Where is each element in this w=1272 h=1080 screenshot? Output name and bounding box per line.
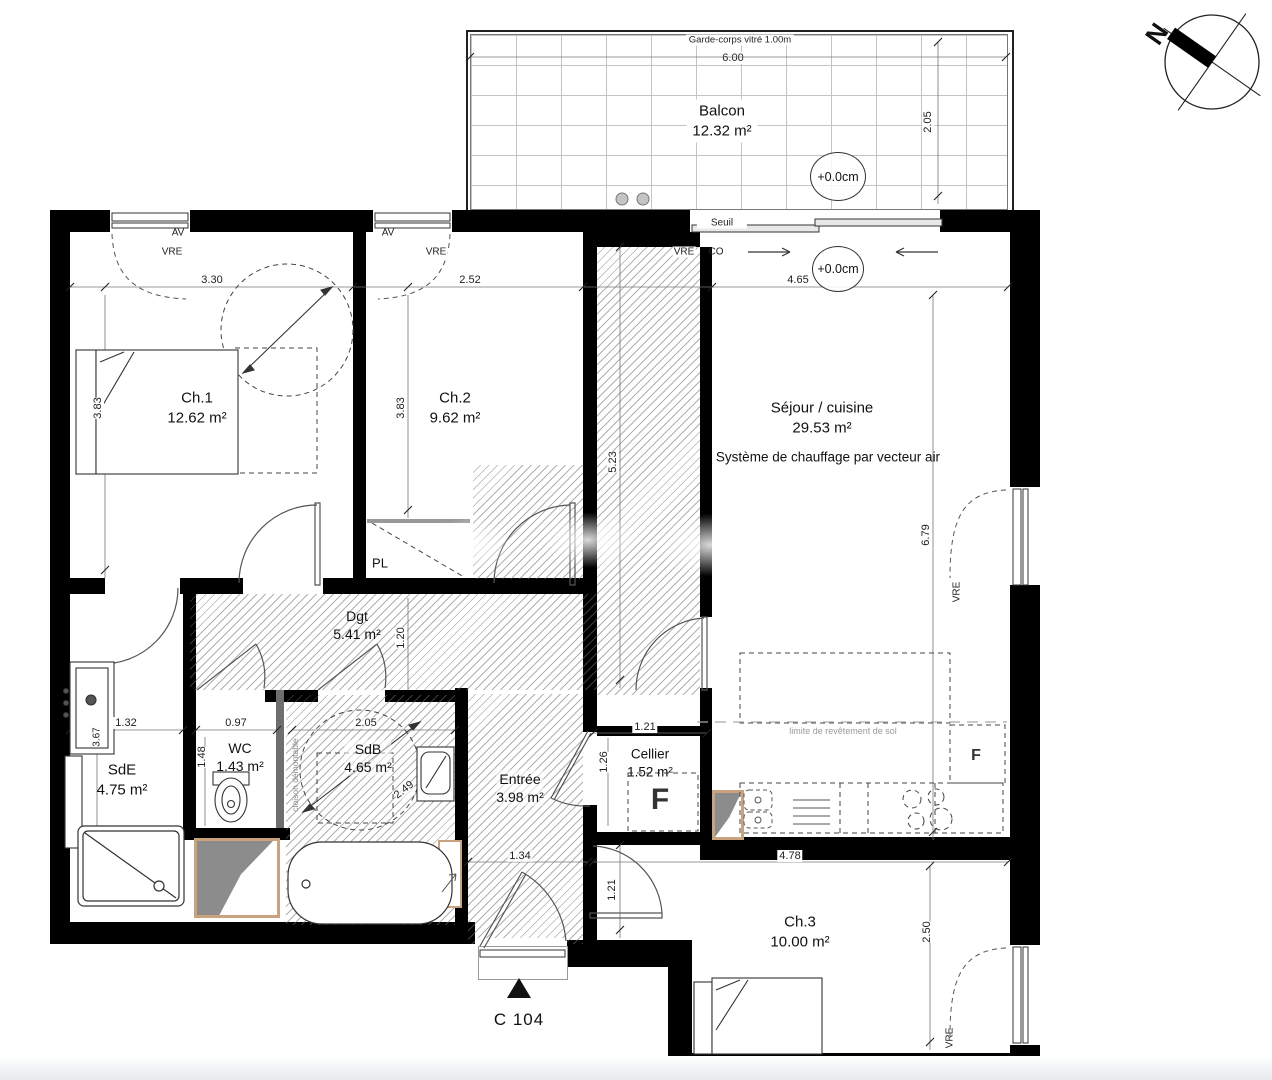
unit-label: C 104 xyxy=(494,1010,544,1030)
dim-cellier-depth: 1.26 xyxy=(598,751,610,772)
dim-ch2-depth: 3.83 xyxy=(395,397,407,418)
dgt-name: Dgt xyxy=(346,608,368,624)
room-label-ch2: Ch.2 9.62 m² xyxy=(430,389,481,428)
cellier-name: Cellier xyxy=(631,746,669,761)
sde-vanity xyxy=(64,662,115,848)
room-label-sde: SdE 4.75 m² xyxy=(97,761,148,800)
dim-ch1-width: 3.30 xyxy=(199,274,224,286)
dim-ch1-depth: 3.83 xyxy=(92,397,104,418)
cloison-demontable-label: cloison démontable xyxy=(290,738,300,811)
cellier-area: 1.52 m² xyxy=(627,764,673,779)
shower-tray xyxy=(78,826,184,906)
room-label-entree: Entrée 3.98 m² xyxy=(496,770,543,806)
sejour-area: 29.53 m² xyxy=(792,419,851,436)
page-bottom-gradient xyxy=(0,1056,1272,1080)
seuil-label: Seuil xyxy=(697,218,747,229)
vre-label-ch2: VRE xyxy=(425,247,448,258)
entree-area: 3.98 m² xyxy=(496,789,543,805)
sde-area: 4.75 m² xyxy=(97,781,148,798)
av-label-ch1: AV xyxy=(172,228,185,239)
dim-sejour-width: 4.65 xyxy=(785,274,810,286)
dashed-items xyxy=(221,264,1005,833)
dimension-ticks xyxy=(66,38,1012,1046)
window-frames xyxy=(112,213,1028,1043)
toilet xyxy=(213,772,249,822)
ch1-area: 12.62 m² xyxy=(167,409,226,426)
entree-name: Entrée xyxy=(499,771,540,787)
room-label-ch1: Ch.1 12.62 m² xyxy=(167,389,226,428)
vre-label-ch3: VRE xyxy=(945,1028,956,1049)
outlet-symbol: F xyxy=(971,747,981,765)
dim-sde-depth: 3.67 xyxy=(92,727,103,746)
room-label-ch3: Ch.3 10.00 m² xyxy=(770,913,829,952)
dim-sejour-depth: 6.79 xyxy=(920,524,932,545)
entry-triangle xyxy=(507,978,531,998)
dim-entree-width: 1.34 xyxy=(507,850,532,862)
sde-name: SdE xyxy=(108,762,136,779)
sejour-name: Séjour / cuisine xyxy=(771,400,874,417)
vre-label-ch1: VRE xyxy=(161,247,184,258)
sdb-name: SdB xyxy=(355,741,381,757)
ch3-name: Ch.3 xyxy=(784,914,816,931)
sejour-level-marker: +0.0cm xyxy=(812,246,864,292)
room-label-sejour: Séjour / cuisine 29.53 m² xyxy=(771,399,874,438)
sejour-heating-note: Système de chauffage par vecteur air xyxy=(716,450,940,465)
dim-sdb-width: 2.05 xyxy=(353,717,378,729)
ch2-area: 9.62 m² xyxy=(430,409,481,426)
turning-circle-arrows xyxy=(243,287,420,812)
pl-label: PL xyxy=(372,556,388,571)
sdb-area: 4.65 m² xyxy=(344,759,391,775)
sdb-washbasin xyxy=(417,747,454,801)
ch1-name: Ch.1 xyxy=(181,390,213,407)
dim-cellier-width: 1.21 xyxy=(632,721,657,733)
dim-ch2-width: 2.52 xyxy=(457,274,482,286)
ch3-area: 10.00 m² xyxy=(770,933,829,950)
balcony-drains xyxy=(616,193,649,205)
dim-sde-width: 1.32 xyxy=(113,717,138,729)
kitchen-sink-hob xyxy=(744,790,830,828)
dim-hall-depth: 1.21 xyxy=(606,879,618,900)
av-label-ch2: AV xyxy=(382,228,395,239)
floor-plan-canvas: Garde-corps vitré 1.00m 6.00 2.05 Balcon… xyxy=(0,0,1272,1080)
dim-ch3-depth: 2.50 xyxy=(921,921,933,942)
room-label-dgt: Dgt 5.41 m² xyxy=(333,607,380,643)
dim-shaft-depth: 5.23 xyxy=(607,451,619,472)
dim-wc-depth: 1.48 xyxy=(196,746,208,767)
room-label-cellier: Cellier 1.52 m² xyxy=(627,745,673,780)
sejour-level-value: +0.0cm xyxy=(817,262,858,276)
ch2-name: Ch.2 xyxy=(439,390,471,407)
room-label-sdb: SdB 4.65 m² xyxy=(344,740,391,776)
dim-dgt-width: 1.20 xyxy=(395,627,407,648)
vre-label-strip: VRE xyxy=(673,247,696,258)
pl-track xyxy=(367,519,470,523)
floor-limit-label: limite de revêtement de sol xyxy=(786,726,900,736)
bed-ch3 xyxy=(694,978,822,1054)
wc-area: 1.43 m² xyxy=(216,758,263,774)
wc-name: WC xyxy=(228,740,251,756)
dgt-area: 5.41 m² xyxy=(333,626,380,642)
dimension-lines xyxy=(70,42,1008,1050)
bathtub xyxy=(288,842,452,924)
plan-linework xyxy=(0,0,1272,1080)
vre-label-sejour: VRE xyxy=(952,582,963,603)
fridge-symbol: F xyxy=(651,783,669,817)
window-swings xyxy=(112,234,1006,1036)
dim-ch3-width: 4.78 xyxy=(777,850,802,862)
dim-wc-width: 0.97 xyxy=(223,717,248,729)
room-label-wc: WC 1.43 m² xyxy=(216,739,263,775)
co-label: CO xyxy=(709,247,724,258)
